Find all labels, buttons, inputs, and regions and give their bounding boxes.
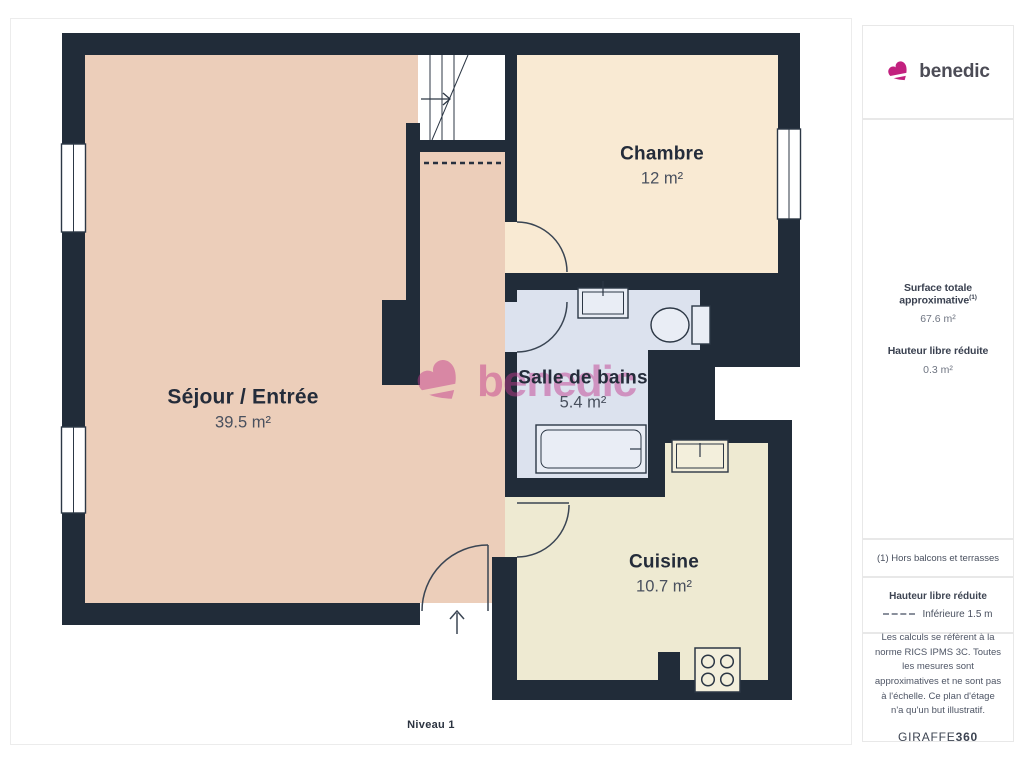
- floor-plan-drawing: [0, 0, 862, 768]
- entrance-door-gap: [420, 603, 492, 625]
- stairs-icon: [418, 55, 505, 140]
- legal-card: Les calculs se réfèrent à la norme RICS …: [862, 633, 1014, 742]
- brand-card: benedic: [862, 25, 1014, 119]
- legend-title: Hauteur libre réduite: [889, 591, 987, 602]
- footnote-marker: (1): [969, 294, 977, 301]
- reduced-height-label: Hauteur libre réduite: [888, 345, 989, 357]
- window-icon: [778, 129, 801, 219]
- room-label-chambre: Chambre 12 m²: [620, 144, 704, 189]
- benedic-logo-icon: [886, 59, 912, 85]
- window-icon: [62, 144, 86, 232]
- bathtub-icon: [536, 425, 646, 473]
- room-label-cuisine: Cuisine 10.7 m²: [629, 552, 699, 597]
- surface-total-label: Surface totale approximative(1): [867, 282, 1009, 307]
- reduced-height-value: 0.3 m²: [923, 364, 953, 376]
- provider-logo: GIRAFFE360: [898, 730, 978, 744]
- room-label-salle-de-bains: Salle de bains 5.4 m²: [518, 368, 648, 413]
- sidebar: benedic Surface totale approximative(1) …: [862, 0, 1014, 768]
- window-icon: [62, 427, 86, 513]
- footnote-text: (1) Hors balcons et terrasses: [877, 553, 999, 564]
- sink-icon: [672, 440, 728, 472]
- room-label-sejour: Séjour / Entrée 39.5 m²: [167, 386, 318, 433]
- surface-info-card: Surface totale approximative(1) 67.6 m² …: [862, 119, 1014, 539]
- footnote-card: (1) Hors balcons et terrasses: [862, 539, 1014, 577]
- legend-item: Inférieure 1.5 m: [883, 609, 992, 620]
- dashed-line-icon: [883, 613, 915, 615]
- brand-name: benedic: [919, 61, 989, 83]
- surface-total-value: 67.6 m²: [920, 313, 956, 325]
- legend-card: Hauteur libre réduite Inférieure 1.5 m: [862, 577, 1014, 633]
- stove-icon: [695, 648, 740, 692]
- disclaimer-text: Les calculs se réfèrent à la norme RICS …: [874, 631, 1002, 719]
- toilet-icon: [651, 306, 710, 344]
